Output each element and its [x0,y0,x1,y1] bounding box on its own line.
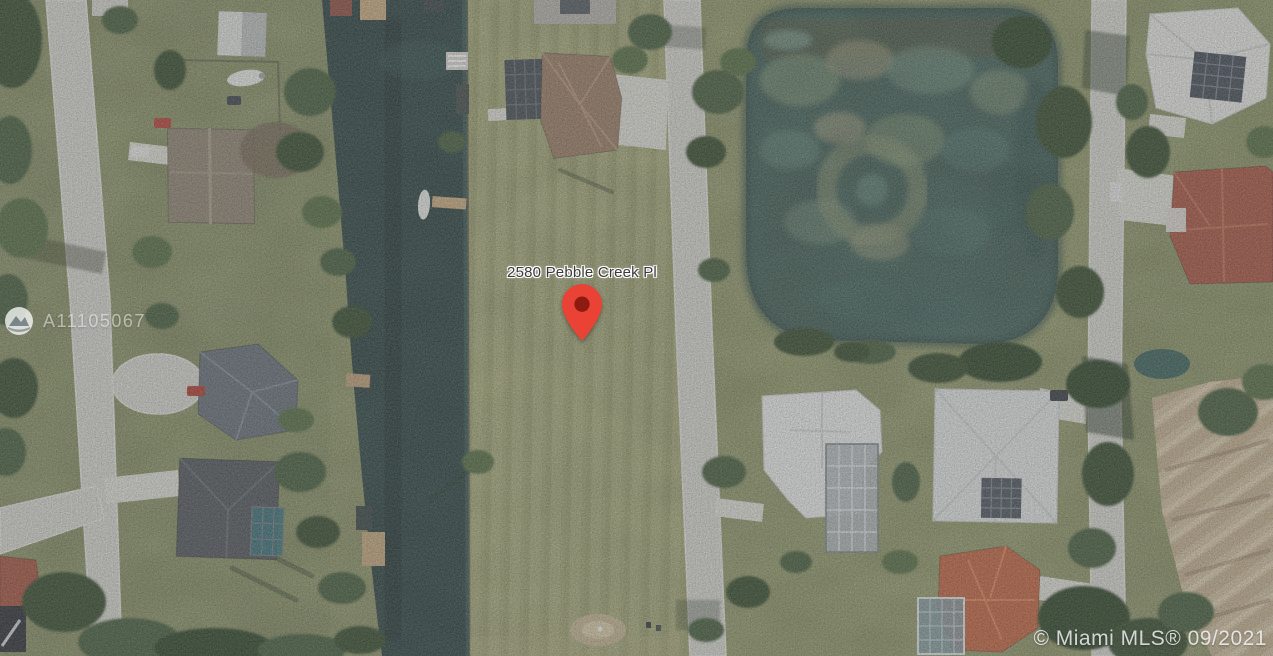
address-label: 2580 Pebble Creek Pl [507,264,657,281]
satellite-map: 2580 Pebble Creek Pl A11105067 © Miami M… [0,0,1273,656]
aerial-scene [0,0,1273,656]
mls-watermark: A11105067 [4,306,146,336]
copyright-watermark: © Miami MLS® 09/2021 [1033,627,1267,651]
listing-id-watermark: A11105067 [43,311,146,332]
mls-logo-icon [4,306,34,336]
location-pin-icon [562,284,602,341]
